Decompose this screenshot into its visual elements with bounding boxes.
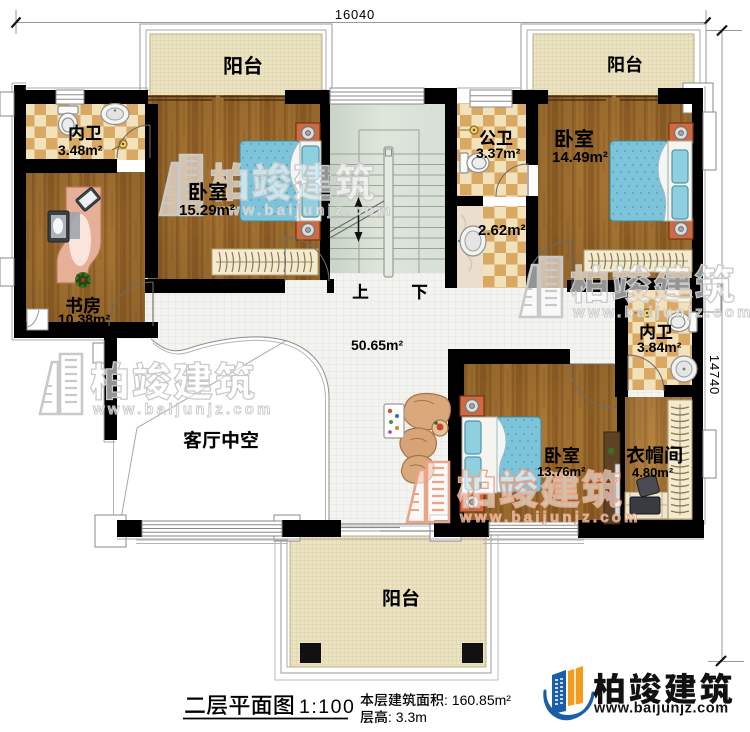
svg-text:16040: 16040 xyxy=(335,7,375,22)
svg-text:14740: 14740 xyxy=(707,355,722,395)
svg-text:10.38m²: 10.38m² xyxy=(58,311,110,327)
svg-text:4.80m²: 4.80m² xyxy=(632,465,674,480)
svg-text:www.baijunjz.com: www.baijunjz.com xyxy=(459,509,641,526)
svg-text:www.baijunjz.com: www.baijunjz.com xyxy=(572,304,750,321)
svg-text:1:100: 1:100 xyxy=(299,696,355,718)
svg-text:www.baijunjz.com: www.baijunjz.com xyxy=(212,202,394,219)
svg-text:www.baijunjz.com: www.baijunjz.com xyxy=(92,401,274,418)
svg-text:50.65m²: 50.65m² xyxy=(351,337,403,353)
svg-text:2.62m²: 2.62m² xyxy=(478,222,526,239)
svg-text:3.37m²: 3.37m² xyxy=(476,145,521,161)
svg-text:www.baijunjz.com: www.baijunjz.com xyxy=(593,701,729,717)
svg-text:3.48m²: 3.48m² xyxy=(58,142,103,158)
svg-text:: 160.85m²: : 160.85m² xyxy=(444,692,511,708)
svg-text:14.49m²: 14.49m² xyxy=(552,149,608,166)
svg-text:13.76m²: 13.76m² xyxy=(537,464,586,479)
svg-text:: 3.3m: : 3.3m xyxy=(388,709,427,725)
svg-text:3.84m²: 3.84m² xyxy=(637,339,682,355)
svg-text:15.29m²: 15.29m² xyxy=(179,202,235,219)
